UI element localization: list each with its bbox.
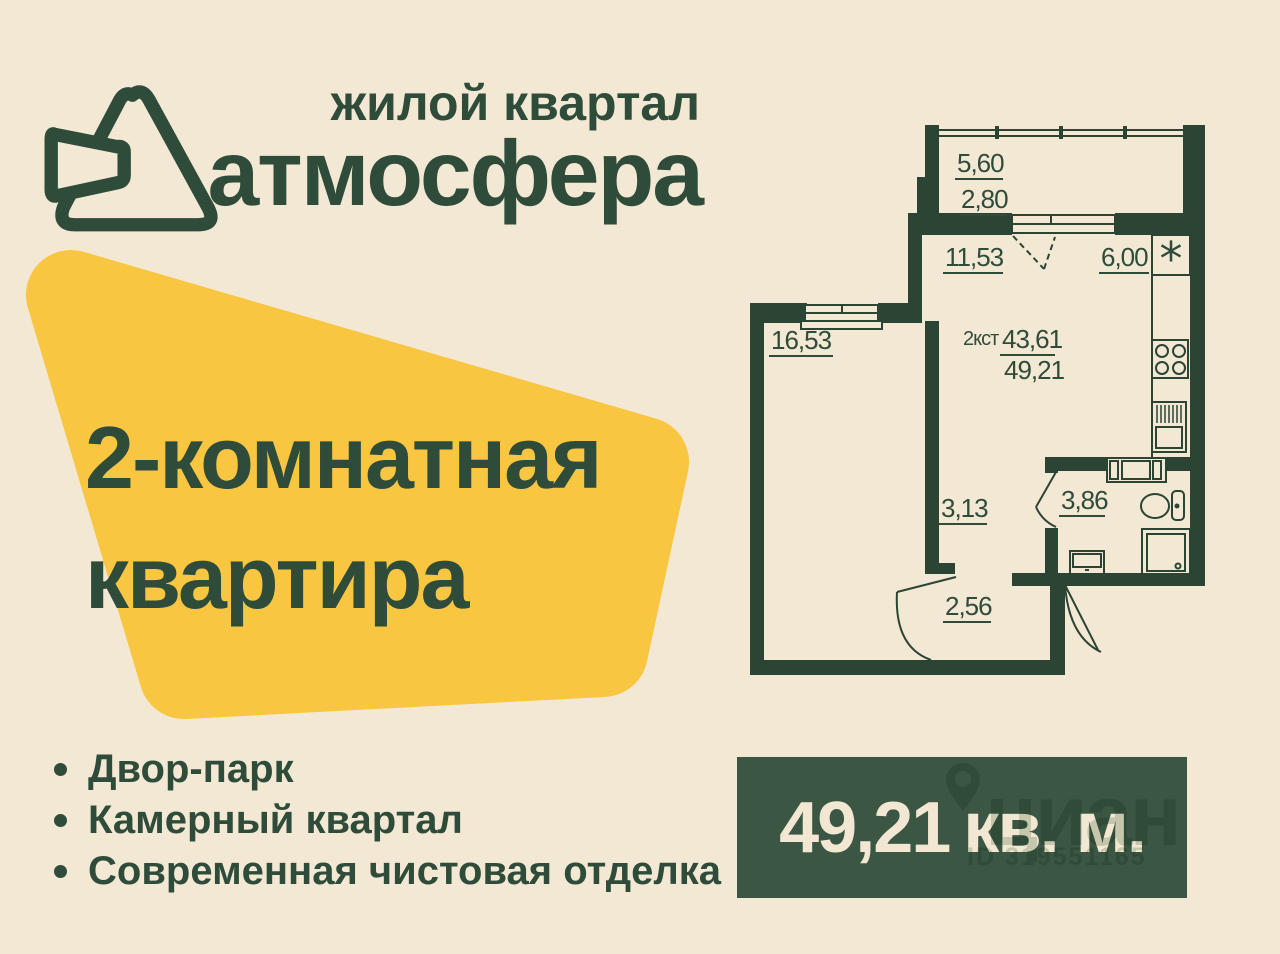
label-bedroom: 16,53 bbox=[771, 325, 832, 355]
offer-badge-line2: квартира bbox=[85, 518, 600, 638]
feature-label: Камерный квартал bbox=[88, 798, 463, 842]
offer-badge-text: 2-комнатная квартира bbox=[85, 398, 600, 638]
feature-item: Двор-парк bbox=[52, 744, 721, 795]
feature-item: Современная чистовая отделка bbox=[52, 846, 721, 897]
label-unit-type: 2кст bbox=[963, 328, 999, 350]
washing-machine-icon bbox=[1107, 458, 1166, 482]
vent-asterisk-icon: * bbox=[1160, 232, 1183, 286]
feature-item: Камерный квартал bbox=[52, 795, 721, 846]
area-value: 49,21 bbox=[779, 787, 949, 869]
bullet-icon bbox=[54, 865, 67, 878]
label-balcony-area: 2,80 bbox=[961, 184, 1008, 214]
area-unit: кв. м. bbox=[963, 787, 1145, 869]
label-total-area: 49,21 bbox=[1004, 355, 1065, 385]
brand-name: атмосфера bbox=[207, 120, 702, 227]
features-list: Двор-парк Камерный квартал Современная ч… bbox=[52, 744, 721, 897]
shower-icon bbox=[1142, 529, 1190, 576]
bullet-icon bbox=[54, 814, 67, 827]
entry-door-leaf bbox=[1065, 585, 1098, 650]
label-living-area: 43,61 bbox=[1002, 324, 1063, 354]
bathroom-door-swing bbox=[1036, 507, 1056, 527]
bullet-icon bbox=[54, 763, 67, 776]
label-entry-hall: 2,56 bbox=[945, 591, 992, 621]
offer-badge-line1: 2-комнатная bbox=[85, 398, 600, 518]
bath-sink-icon bbox=[1070, 551, 1104, 574]
kitchen-sink-icon bbox=[1152, 402, 1186, 452]
balcony-door-swing bbox=[1013, 236, 1044, 269]
label-balcony-width: 5,60 bbox=[957, 148, 1004, 178]
bedroom-door-swing bbox=[897, 592, 931, 660]
label-hallway: 3,13 bbox=[941, 493, 988, 523]
ad-canvas: жилой квартал атмосфера 2-комнатная квар… bbox=[0, 0, 1280, 954]
stove-icon bbox=[1152, 340, 1188, 378]
label-kitchen: 6,00 bbox=[1101, 242, 1148, 272]
floorplan: 5,60 2,80 11,53 6,00 * 16,53 2кст 43,61 … bbox=[745, 115, 1215, 715]
balcony-glazing bbox=[939, 126, 1183, 139]
atmosfera-logo-icon bbox=[44, 82, 229, 238]
bathroom-door-leaf bbox=[1036, 472, 1056, 507]
label-bathroom: 3,86 bbox=[1061, 485, 1108, 515]
label-living-room: 11,53 bbox=[945, 242, 1004, 272]
toilet-icon bbox=[1141, 491, 1184, 520]
feature-label: Современная чистовая отделка bbox=[88, 849, 721, 893]
feature-label: Двор-парк bbox=[88, 747, 294, 791]
area-panel: 49,21 кв. м. циан ID 319551165 bbox=[737, 757, 1187, 898]
logo-flag-shape bbox=[51, 134, 124, 196]
bedroom-door-leaf bbox=[897, 577, 956, 592]
living-room-window bbox=[1012, 215, 1115, 269]
